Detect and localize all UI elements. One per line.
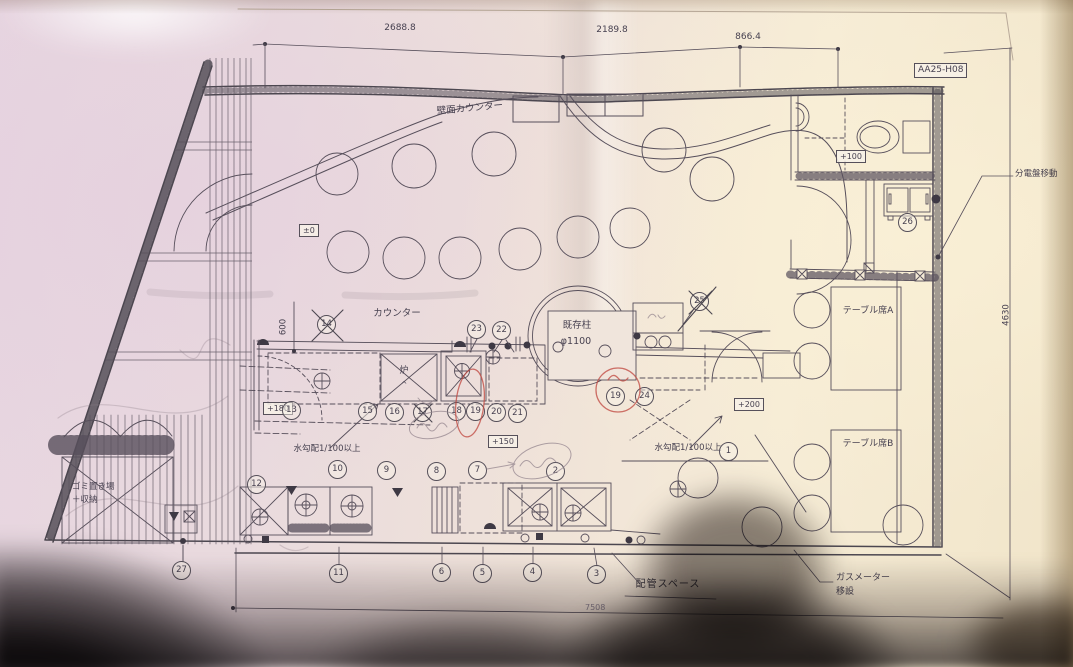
pencil-annotations: [407, 314, 665, 485]
red-pen-annotations: [453, 368, 640, 439]
floor-plan-photo: 2688.8 2189.8 866.4 AA25-H08 壁面カウンター ±0 …: [0, 0, 1073, 667]
ink-cross-marks: [312, 287, 716, 422]
pencil-faint-curves: [58, 339, 308, 551]
